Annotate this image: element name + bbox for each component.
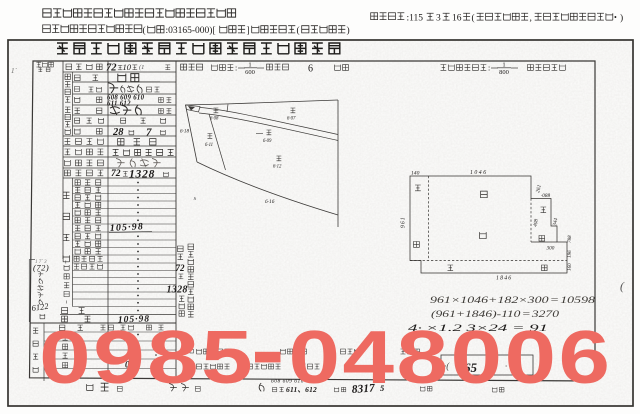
svg-text:(: ( (297, 25, 300, 36)
svg-text:1: 1 (502, 62, 505, 69)
svg-text:600: 600 (245, 69, 255, 76)
svg-text::03165-000)[: :03165-000)[ (166, 25, 216, 36)
svg-text:3: 3 (436, 14, 441, 24)
svg-text::: : (488, 64, 490, 73)
svg-text:): ) (620, 13, 623, 24)
svg-text:1328: 1328 (129, 169, 155, 181)
svg-text::: : (235, 64, 237, 73)
svg-text:1328: 1328 (167, 285, 188, 296)
svg-text:∧: ∧ (193, 197, 197, 202)
svg-text::115: :115 (407, 14, 424, 24)
svg-text:1 7´ 3: 1 7´ 3 (35, 260, 47, 265)
svg-text:7: 7 (146, 127, 152, 139)
svg-text:(: ( (472, 13, 475, 24)
svg-text:1`: 1` (11, 67, 18, 75)
svg-text:611 612: 611 612 (107, 101, 131, 108)
svg-text:72: 72 (106, 63, 117, 74)
svg-text:6·09: 6·09 (263, 139, 272, 144)
svg-text:6·18: 6·18 (180, 129, 189, 135)
svg-text:0985-048006: 0985-048006 (39, 316, 612, 399)
svg-text:16: 16 (452, 14, 462, 24)
svg-text:28: 28 (112, 127, 124, 138)
svg-text:): ) (347, 25, 350, 36)
svg-text:]: ] (247, 26, 250, 36)
svg-text:1: 1 (248, 62, 251, 69)
svg-text:,: , (530, 14, 532, 24)
svg-text:6: 6 (308, 64, 313, 75)
svg-text:961: 961 (401, 216, 407, 228)
svg-text:1046: 1046 (470, 169, 488, 176)
svg-text:·088: ·088 (541, 193, 550, 199)
svg-text:10: 10 (123, 62, 132, 72)
svg-text:196: 196 (568, 250, 574, 258)
svg-text:140: 140 (411, 171, 420, 177)
svg-text:1846: 1846 (496, 275, 512, 282)
svg-text:(: ( (143, 25, 146, 36)
svg-text:72: 72 (176, 263, 186, 273)
svg-text:6·07: 6·07 (287, 117, 296, 122)
svg-text:300: 300 (547, 246, 555, 252)
svg-text:800: 800 (499, 69, 509, 76)
svg-text:(1: (1 (139, 64, 144, 71)
svg-text:•: • (614, 13, 617, 22)
svg-text:6·12: 6·12 (273, 165, 282, 170)
svg-text:788: 788 (568, 235, 574, 243)
svg-text:72: 72 (111, 169, 121, 179)
svg-text:160: 160 (568, 263, 574, 271)
svg-text:6·11: 6·11 (205, 143, 213, 148)
svg-text:6·16: 6·16 (265, 199, 275, 205)
svg-text:6·08: 6·08 (210, 117, 219, 122)
svg-text:961×1046+182×300 = 10598: 961×1046+182×300 = 10598 (430, 296, 595, 306)
